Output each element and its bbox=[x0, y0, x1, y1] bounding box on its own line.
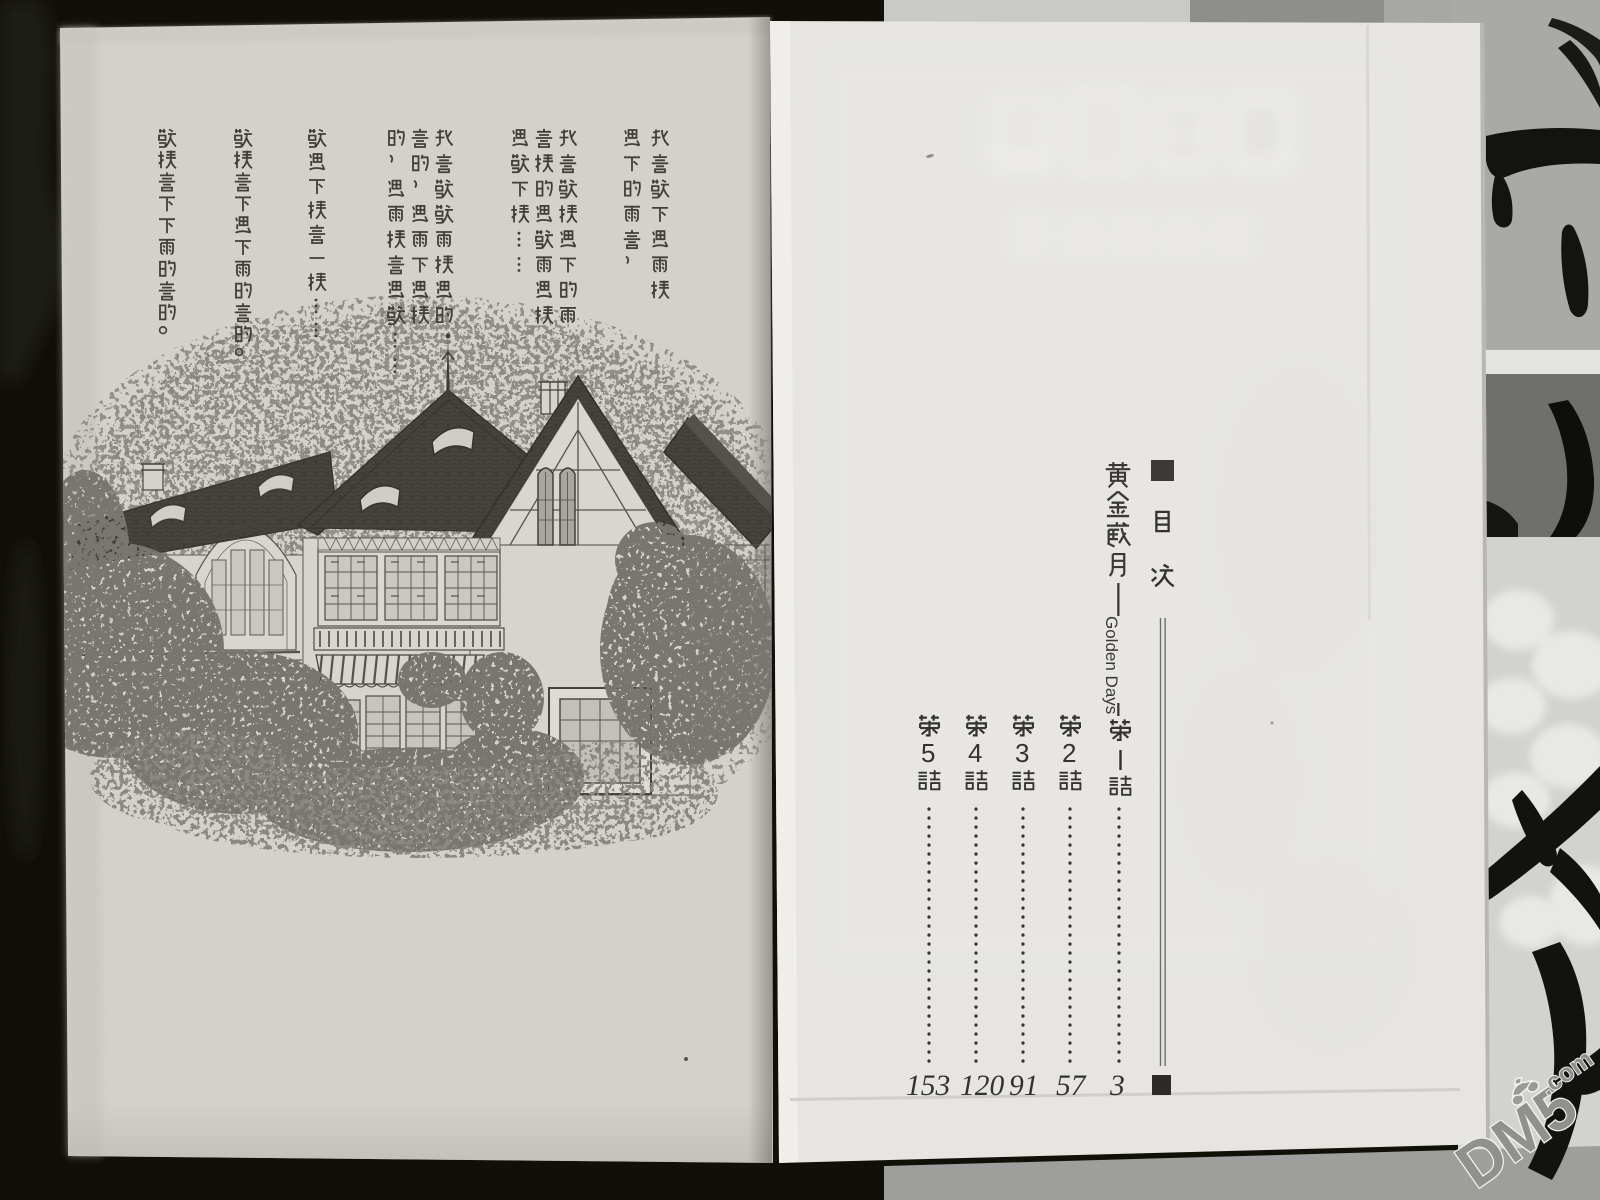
svg-text:2: 2 bbox=[1062, 738, 1076, 768]
svg-text:5: 5 bbox=[921, 738, 935, 768]
svg-text:120: 120 bbox=[960, 1070, 1005, 1102]
svg-text:57: 57 bbox=[1056, 1070, 1087, 1102]
svg-text:Golden Days: Golden Days bbox=[1102, 616, 1121, 714]
svg-text:153: 153 bbox=[906, 1070, 950, 1102]
svg-text:3: 3 bbox=[1109, 1070, 1125, 1102]
svg-text:3: 3 bbox=[1015, 738, 1029, 768]
svg-text:4: 4 bbox=[968, 738, 982, 768]
svg-text:91: 91 bbox=[1009, 1070, 1039, 1102]
